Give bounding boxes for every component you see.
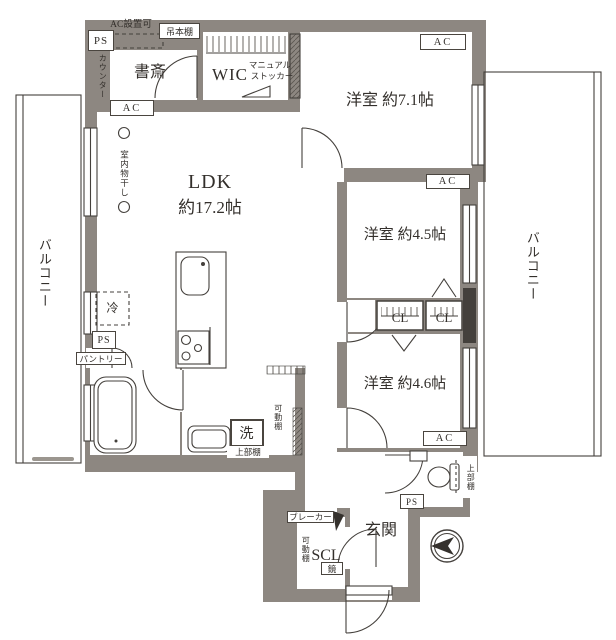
fridge-label: 冷 (96, 292, 129, 325)
balcony-right-label: バルコニー (522, 218, 542, 313)
closet-right-label: CL (426, 306, 462, 330)
movable-shelf-label-scl: 可動棚 (299, 528, 311, 570)
kitchen-faucet (201, 262, 205, 266)
movable-shelf-label-wash: 可動棚 (271, 397, 284, 437)
study-label: 書斎 (122, 62, 178, 84)
manual-stocker-label-2: ストッカー (248, 71, 296, 82)
ac-box-bedroom-71: AC (420, 34, 466, 50)
upper-shelf-ticks (267, 366, 305, 374)
upper-shelf-label-wash: 上部棚 (227, 446, 269, 458)
door-bedroom-71 (302, 128, 342, 168)
ac-box-bedroom-45: AC (426, 174, 470, 189)
wic-step-stool (242, 86, 270, 97)
bathtub-drain (115, 440, 118, 443)
breaker-mark (333, 511, 344, 531)
hanging-bookshelf-box: 吊本棚 (159, 23, 200, 39)
breaker-box: ブレーカー (287, 511, 334, 523)
door-bedroom-46 (347, 408, 387, 448)
bedroom-45-label: 洋室 約4.5帖 (350, 227, 460, 245)
compass-icon (431, 530, 463, 562)
manual-stocker-label-1: マニュアル (246, 60, 294, 71)
balcony-left-label: バルコニー (34, 225, 54, 320)
wic-hanger (206, 36, 286, 52)
folding-door-mark-down (392, 335, 416, 351)
ps-box-kitchen: PS (92, 331, 116, 349)
bedroom-46-label: 洋室 約4.6帖 (350, 376, 460, 394)
washer-box: 洗 (230, 419, 264, 447)
pantry-box: パントリー (76, 352, 126, 365)
drying-hook (119, 128, 130, 139)
upper-shelf-label-toilet: 上部棚 (463, 456, 477, 498)
ac-box-bedroom-46: AC (423, 431, 467, 446)
ps-box-top: PS (88, 30, 114, 51)
door-bathroom (143, 370, 183, 410)
indoor-drying-label: 室内物干し (117, 144, 131, 204)
toilet-bowl (428, 467, 450, 487)
closet-left-label: CL (377, 306, 423, 330)
toilet-paper-holder (410, 451, 427, 461)
ldk-label: LDK (160, 170, 260, 194)
ldk-size-label: 約17.2帖 (150, 198, 270, 218)
floor-plan: PS PS PS AC AC AC AC 吊本棚 パントリー 洗 鏡 ブレーカー… (0, 0, 616, 640)
entrance-threshold (346, 586, 392, 595)
folding-door-mark-up (432, 279, 456, 297)
movable-shelf-hatch (293, 408, 302, 455)
entrance-label: 玄関 (358, 521, 404, 541)
toilet-tank (450, 464, 459, 490)
scl-label: SCL (306, 546, 346, 566)
bedroom-71-label: 洋室 約7.1帖 (320, 91, 460, 111)
ps-box-toilet: PS (400, 494, 424, 509)
wall-dark-segment (463, 288, 476, 343)
counter-label: カウンター (95, 53, 109, 99)
balcony-right-outline (484, 72, 601, 456)
ac-installable-label: AC設置可 (97, 20, 165, 32)
ac-box-ldk: AC (110, 100, 154, 116)
door-front (346, 590, 389, 633)
